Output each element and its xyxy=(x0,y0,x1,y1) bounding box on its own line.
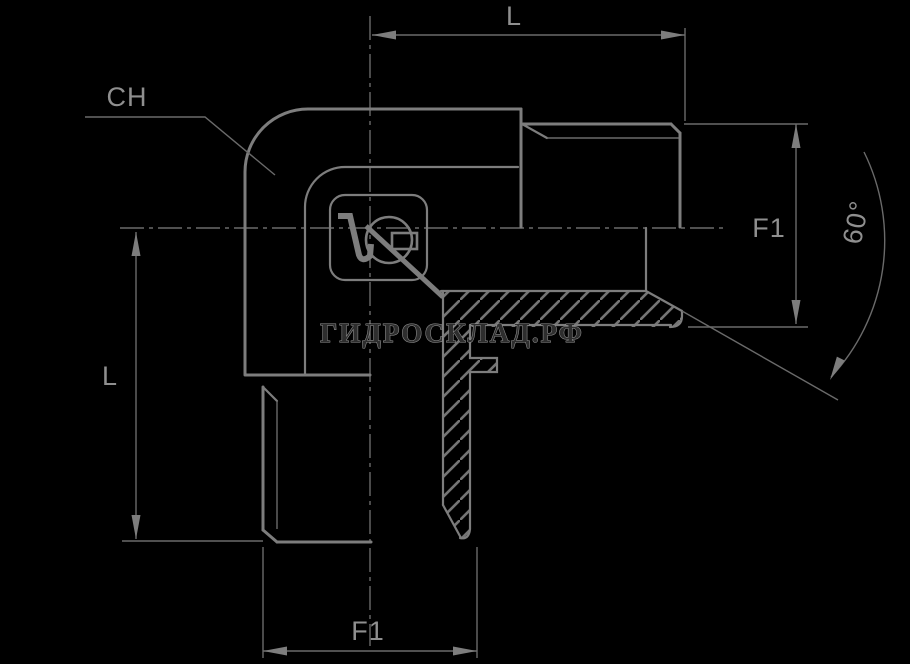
label-top-length: L xyxy=(506,1,522,31)
label-bottom-thread: F1 xyxy=(351,616,385,646)
label-right-thread: F1 xyxy=(752,213,786,243)
arrowhead-top-left xyxy=(372,31,396,40)
watermark-text: ГИДРОСКЛАД.РФ xyxy=(320,318,584,348)
right-thread-runout xyxy=(522,124,547,138)
arrowhead-left-bottom xyxy=(132,515,141,539)
technical-drawing-canvas: CH L L F1 F1 60° xyxy=(0,0,910,664)
right-tip-chamfer xyxy=(671,124,680,133)
arrowhead-left-top xyxy=(132,232,141,256)
elbow-fitting-drawing: CH L L F1 F1 60° xyxy=(0,0,910,664)
cone-construction-line xyxy=(682,311,838,400)
label-left-length: L xyxy=(102,361,118,391)
arrowhead-top-right xyxy=(661,31,685,40)
bottom-thread-runout xyxy=(263,387,277,401)
bottom-tip-chamfer xyxy=(263,530,277,542)
arrowhead-angle-arc xyxy=(826,357,845,382)
arrowhead-bottom-left xyxy=(263,647,287,656)
angle-arc xyxy=(831,152,885,377)
label-wrench-size: CH xyxy=(107,82,148,112)
arrowhead-bottom-right xyxy=(453,647,477,656)
label-cone-angle: 60° xyxy=(837,198,875,247)
watermark-logo-slash xyxy=(366,226,443,297)
spout-outer-vertical xyxy=(470,325,497,529)
arrowhead-right-bottom xyxy=(792,300,801,324)
arrowhead-right-top xyxy=(792,124,801,148)
